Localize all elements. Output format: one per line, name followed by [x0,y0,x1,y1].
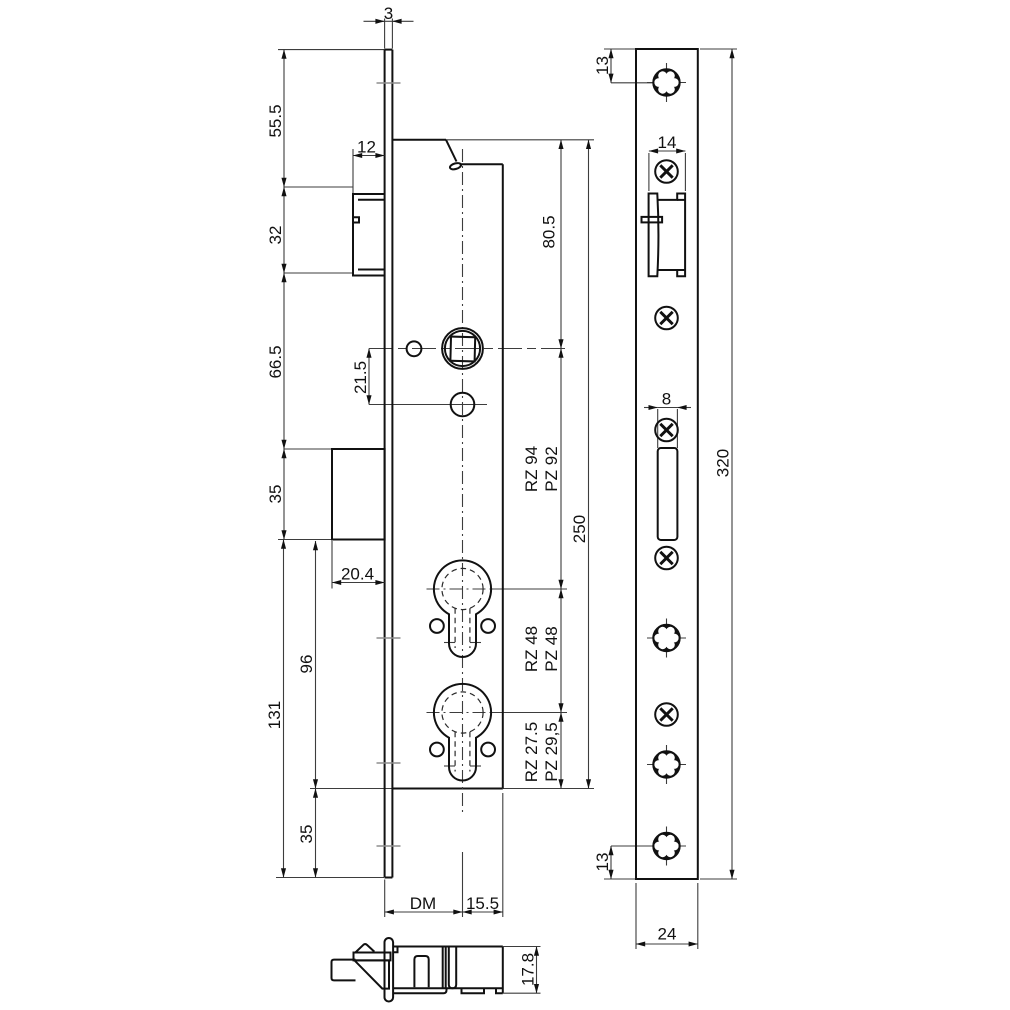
svg-text:35: 35 [297,825,316,844]
svg-text:PZ 29,5: PZ 29,5 [542,722,561,782]
svg-text:15.5: 15.5 [466,894,499,913]
svg-text:12: 12 [357,138,376,157]
svg-text:RZ 48: RZ 48 [522,626,541,672]
svg-text:320: 320 [714,449,733,477]
svg-text:32: 32 [266,226,285,245]
svg-text:80.5: 80.5 [540,215,559,248]
svg-text:35: 35 [266,485,285,504]
svg-text:21.5: 21.5 [351,361,370,394]
svg-text:24: 24 [658,925,677,944]
svg-text:RZ 94: RZ 94 [522,446,541,492]
svg-text:3: 3 [384,4,393,23]
svg-text:250: 250 [570,515,589,543]
svg-text:13: 13 [593,853,612,872]
svg-text:RZ 27.5: RZ 27.5 [522,722,541,782]
svg-text:66.5: 66.5 [266,345,285,378]
svg-text:PZ 48: PZ 48 [542,626,561,671]
svg-text:14: 14 [658,133,677,152]
svg-text:13: 13 [593,56,612,75]
svg-text:131: 131 [265,701,284,729]
svg-text:55.5: 55.5 [266,104,285,137]
svg-text:20.4: 20.4 [341,565,374,584]
svg-text:8: 8 [662,390,671,409]
svg-text:96: 96 [297,655,316,674]
svg-text:DM: DM [410,894,436,913]
svg-text:PZ 92: PZ 92 [542,446,561,491]
svg-text:17.8: 17.8 [519,953,538,986]
